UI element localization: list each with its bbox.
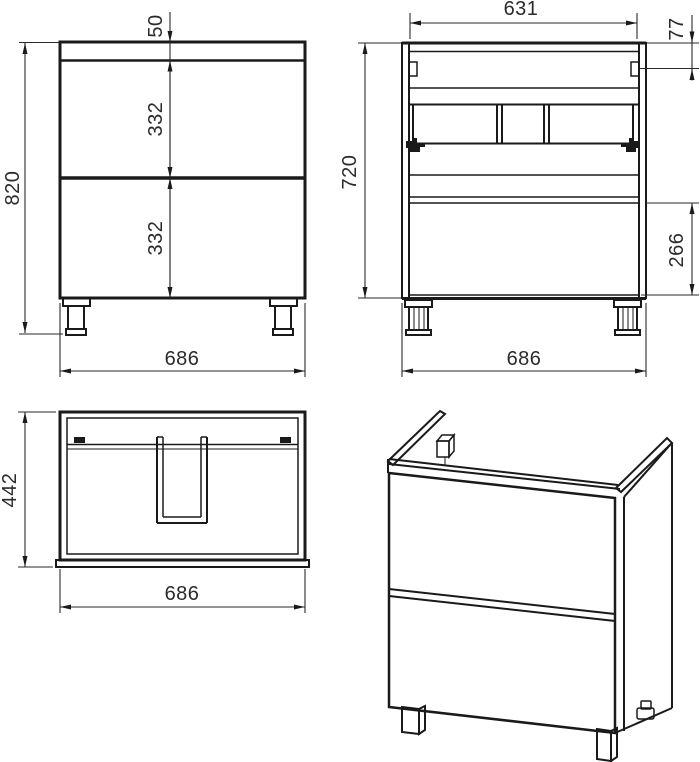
back-right-side-panel <box>639 43 646 298</box>
back-view: 631 77 720 266 686 <box>339 0 699 377</box>
top-right-clip <box>280 437 291 443</box>
technical-drawing-sheet: 820 50 332 332 686 <box>0 0 700 762</box>
persp-drawer-gap-top <box>389 589 615 614</box>
top-left-clip <box>74 437 85 443</box>
dim-label-overall-height: 820 <box>2 171 24 206</box>
back-left-side-panel <box>402 43 409 298</box>
dim-label-front-width: 686 <box>165 348 200 370</box>
persp-drawer-gap-bottom <box>389 596 615 621</box>
back-carcass <box>402 43 646 299</box>
top-outline <box>56 412 309 567</box>
front-view: 820 50 332 332 686 <box>2 12 305 377</box>
front-cabinet-outline <box>60 42 305 298</box>
right-wall-clip <box>631 62 639 76</box>
dim-label-back-width: 686 <box>507 348 542 370</box>
right-drawer-bracket <box>621 138 640 152</box>
dim-label-inner-width: 631 <box>504 0 539 20</box>
top-dimensions: 442 686 <box>0 412 305 613</box>
sink-cutout <box>157 437 207 523</box>
dim-label-lower-drawer: 332 <box>145 221 167 256</box>
persp-right-upstand <box>616 438 672 492</box>
dim-label-upper-drawer: 332 <box>145 102 167 137</box>
top-view: 442 686 <box>0 412 309 613</box>
left-wall-clip <box>409 62 417 76</box>
front-dimensions: 820 50 332 332 686 <box>2 12 305 377</box>
dim-label-depth: 442 <box>0 473 21 508</box>
persp-cabinet <box>388 411 672 733</box>
cabinet-drawing: 820 50 332 332 686 <box>0 0 700 762</box>
persp-clip <box>437 435 454 466</box>
dim-label-lower-panel: 266 <box>666 233 688 268</box>
front-legs <box>63 298 297 335</box>
dim-label-top-width: 686 <box>165 583 200 605</box>
persp-front-face <box>389 473 615 733</box>
perspective-view <box>388 411 672 761</box>
back-panel-hatch <box>409 203 639 295</box>
dim-label-carcass-height: 720 <box>339 155 361 190</box>
dim-label-mount-offset: 77 <box>666 17 688 40</box>
back-legs <box>405 300 641 335</box>
dim-label-top-rail: 50 <box>145 14 167 37</box>
